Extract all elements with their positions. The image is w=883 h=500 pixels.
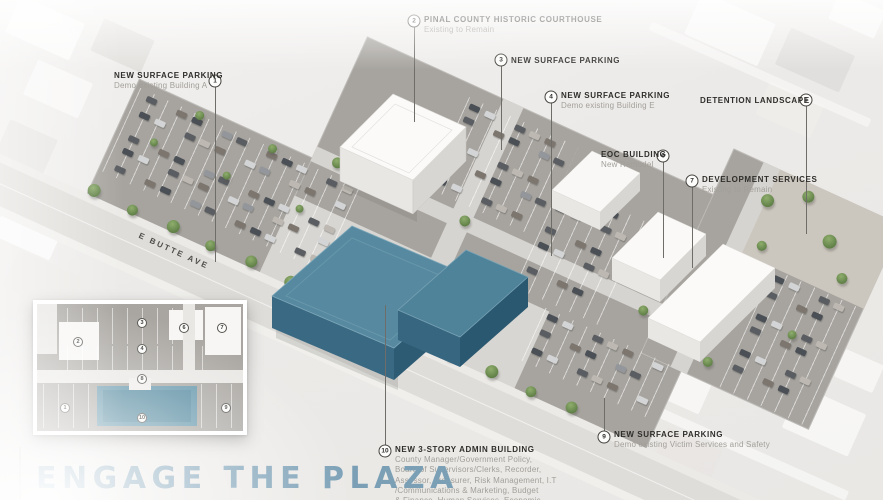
callout-title: NEW SURFACE PARKING	[511, 56, 620, 65]
callout-label: NEW SURFACE PARKING	[511, 56, 620, 65]
callout-subtitle: Demo existing Building E	[561, 101, 670, 110]
callout-leader-line	[501, 60, 502, 150]
inset-marker: 3	[137, 318, 147, 328]
callout-title: EOC BUILDING	[601, 150, 666, 159]
inset-road	[183, 304, 195, 370]
callout-label: DEVELOPMENT SERVICESExisting to Remain	[702, 175, 817, 194]
inset-marker: 10	[137, 413, 147, 423]
callout-number-circle: 3	[495, 54, 508, 67]
callout-leader-line	[414, 21, 415, 122]
callout-number-circle: 2	[408, 15, 421, 28]
callout-title: PINAL COUNTY HISTORIC COURTHOUSE	[424, 15, 602, 24]
callout-subtitle-line: & Finance, Human Servises, Economic	[395, 496, 557, 500]
callout-number-circle: 10	[379, 445, 392, 458]
callout-label: NEW SURFACE PARKINGDemo existing Victim …	[614, 430, 770, 449]
callout-leader-line	[663, 156, 664, 258]
callout-number-circle: 4	[545, 91, 558, 104]
callout-label: PINAL COUNTY HISTORIC COURTHOUSEExisting…	[424, 15, 602, 34]
callout-title: NEW SURFACE PARKING	[614, 430, 770, 439]
callout-title: NEW SURFACE PARKING	[114, 71, 223, 80]
callout-leader-line	[385, 305, 386, 451]
inset-building	[37, 304, 57, 354]
inset-marker: 1	[60, 403, 70, 413]
site-plan-page: E BUTTE AVE	[0, 0, 883, 500]
callout-label: EOC BUILDINGNew Remodel	[601, 150, 666, 169]
callout-subtitle: Demo existing Victim Services and Safety	[614, 440, 770, 449]
callout-subtitle: Existing to Remain	[424, 25, 602, 34]
callout-leader-line	[551, 97, 552, 256]
inset-admin-building-roof	[103, 390, 191, 422]
inset-marker: 6	[179, 323, 189, 333]
callout-leader-line	[215, 81, 216, 262]
inset-marker: 2	[73, 337, 83, 347]
callout-title: NEW SURFACE PARKING	[561, 91, 670, 100]
page-title: ENGAGE THE PLAZA	[36, 461, 459, 496]
callout-subtitle: Existing to Remain	[702, 185, 817, 194]
callout-label: NEW SURFACE PARKINGDemo existing Buildin…	[114, 71, 223, 90]
callout-leader-line	[692, 181, 693, 268]
courthouse-building	[340, 94, 466, 214]
callout-leader-line	[806, 100, 807, 234]
callout-label: DETENTION LANDSCAPE	[700, 96, 810, 105]
inset-marker: 4	[137, 344, 147, 354]
callout-title: NEW 3-STORY ADMIN BUILDING	[395, 445, 557, 454]
callout-number-circle: 7	[686, 175, 699, 188]
callout-number-circle: 9	[598, 431, 611, 444]
callout-subtitle: New Remodel	[601, 160, 666, 169]
callout-subtitle: Demo existing Building A	[114, 81, 223, 90]
callout-title: DETENTION LANDSCAPE	[700, 96, 810, 105]
inset-marker: 9	[221, 403, 231, 413]
inset-marker: 7	[217, 323, 227, 333]
callout-label: NEW SURFACE PARKINGDemo existing Buildin…	[561, 91, 670, 110]
inset-marker: 8	[137, 374, 147, 384]
admin-building	[272, 226, 528, 380]
callout-title: DEVELOPMENT SERVICES	[702, 175, 817, 184]
inset-map: 2367481109	[33, 300, 247, 435]
title-rule	[19, 447, 21, 500]
